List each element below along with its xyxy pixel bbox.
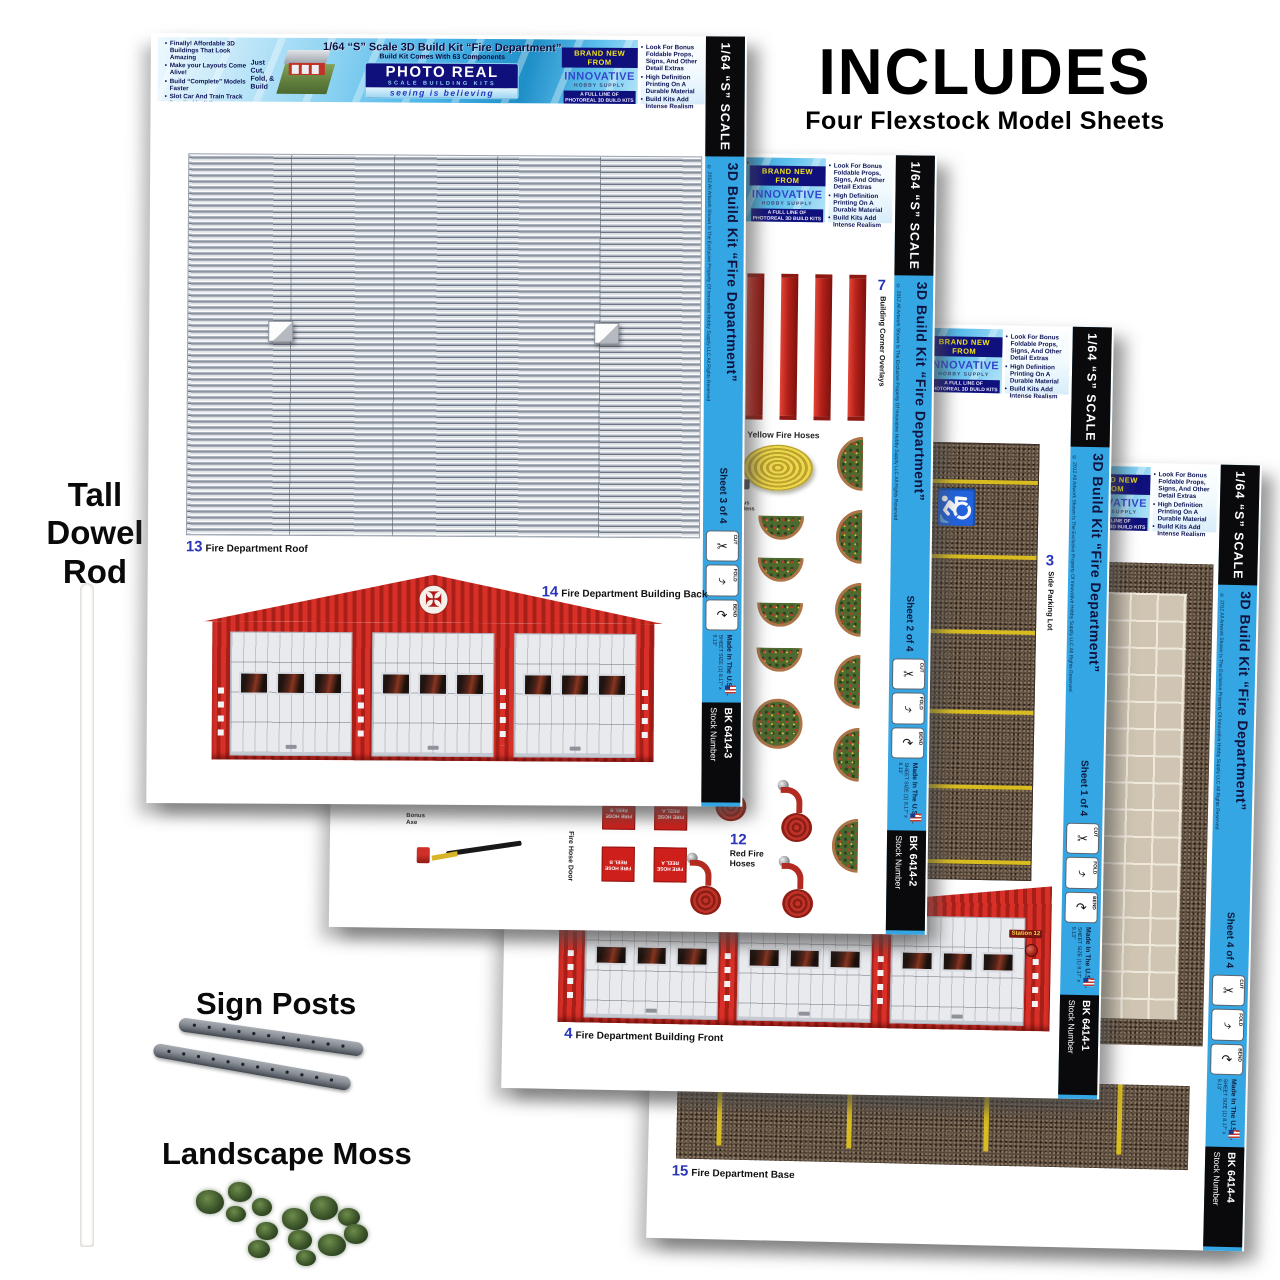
cut-fold-bend-icons: ✂CUT ⤷FOLD ↷BEND [1064, 823, 1099, 924]
fire-hose-door-label: Fire Hose Door [566, 831, 574, 939]
header-left-bullets: Finally! Affordable 3D Buildings That Lo… [158, 37, 251, 102]
garden-half [835, 583, 862, 637]
brand-block: BRAND NEW FROM INNOVATIVE HOBBY SUPPLY A… [749, 157, 826, 222]
bullet: Look For Bonus Foldable Props, Signs, An… [828, 162, 892, 191]
cut-icon: ✂ [903, 668, 914, 681]
part-number: 13 [186, 538, 203, 555]
part-name: Fire Department Base [691, 1168, 795, 1181]
corner-overlay [847, 275, 866, 421]
sheet-number: Sheet 1 of 4 [1063, 759, 1103, 818]
moss-clump [310, 1196, 338, 1220]
stock-number: BK 6414-2 [906, 835, 919, 930]
cut-fold-bend-icons: ✂CUT ⤷FOLD ↷BEND [705, 530, 739, 630]
part-number: 4 [564, 1025, 573, 1042]
door-window [748, 947, 781, 968]
header-right-bullets: Look For Bonus Foldable Props, Signs, An… [828, 158, 893, 223]
sidebar-kit-title: 3D Build Kit “Fire Department” [723, 163, 741, 493]
red-hoses-label: 12 Red Fire Hoses [730, 831, 776, 869]
sign-posts-label: Sign Posts [196, 986, 356, 1022]
parking-line [912, 859, 1031, 865]
roof-vent [594, 323, 619, 344]
moss-clump [282, 1208, 308, 1230]
door-window [828, 949, 861, 970]
landscape-moss-label: Landscape Moss [162, 1136, 412, 1172]
door-window [455, 673, 485, 696]
full-line-label: A FULL LINE OF PHOTOREAL 3D BUILD KITS &… [563, 91, 636, 104]
door-handle [428, 746, 439, 750]
bullet: Make your Layouts Come Alive! [165, 63, 249, 77]
bullet: Build Kits Add Intense Realism [641, 96, 705, 110]
photo-real-logo: PHOTO REAL SCALE BUILDING KITS seeing is… [365, 62, 519, 99]
stock-number: BK 6414-4 [1223, 1152, 1237, 1247]
garden-half [758, 516, 804, 541]
pier-lights [358, 688, 364, 744]
sheet3-header-banner: Finally! Affordable 3D Buildings That Lo… [158, 37, 638, 104]
includes-block: INCLUDES Four Flexstock Model Sheets [785, 42, 1185, 136]
bullet: Build Kits Add Intense Realism [828, 215, 892, 230]
part-number: 7 [877, 277, 886, 294]
cut-fold-build-note: Just Cut, Fold, & Build [250, 38, 277, 102]
garage-door [514, 633, 637, 758]
yellow-fire-hose [743, 444, 814, 491]
door-window [901, 950, 934, 971]
door-window [276, 672, 306, 695]
scale-strip: 1/64 “S” SCALE [1071, 327, 1112, 448]
us-flag-icon [910, 814, 921, 822]
fire-dept-emblem: ✠ [418, 585, 448, 615]
hobby-supply-label: HOBBY SUPPLY [561, 83, 637, 89]
fire-axe [414, 839, 524, 868]
moss-clump [288, 1230, 312, 1250]
sheet-number: Sheet 2 of 4 [889, 594, 929, 653]
cut-icon: ✂ [1077, 832, 1088, 845]
dowel-rod-label: Tall Dowel Rod [30, 476, 160, 591]
logo-tagline: seeing is believing [366, 87, 518, 98]
back-wall [212, 621, 655, 762]
sidebar-kit-title: 3D Build Kit “Fire Department” [1231, 591, 1254, 921]
logo-name: PHOTO REAL [366, 64, 518, 81]
corner-overlay [779, 274, 798, 420]
garden-half [832, 819, 859, 873]
garden-half [757, 603, 803, 628]
part-number: 3 [1046, 552, 1055, 569]
garden-half [834, 655, 861, 709]
parking-line [919, 479, 1038, 485]
fire-hose-reel-door: FIRE HOSE REEL B [601, 847, 634, 882]
red-fire-hose [687, 853, 724, 915]
bend-icon: ↷ [716, 608, 727, 621]
cut-icon: ✂ [1223, 984, 1234, 997]
part-name: Red Fire Hoses [730, 849, 776, 869]
sidebar-kit-title: 3D Build Kit “Fire Department” [910, 282, 930, 612]
stock-number: BK 6414-1 [1078, 1000, 1092, 1095]
parking-line [913, 784, 1032, 790]
bullet: Slot Car And Train Track Detailed buildi… [165, 94, 249, 104]
bullet: Build “Complete” Models Faster [165, 79, 249, 93]
kit-subtitle: Build Kit Comes With 63 Components [323, 53, 561, 61]
bullet: High Definition Printing On A Durable Ma… [1153, 501, 1217, 524]
dowel-rod [80, 583, 94, 1247]
door-handle [951, 1014, 962, 1018]
stock-number-block: Stock Number BK 6414-4 [1203, 1146, 1244, 1247]
pier-lights [218, 687, 224, 743]
stock-number: BK 6414-3 [721, 707, 734, 802]
cut-label: CUT [1238, 979, 1243, 989]
fold-icon: ⤷ [718, 574, 725, 587]
header-right-bullets: Look For Bonus Foldable Props, Signs, An… [1005, 329, 1070, 394]
moss-clump [196, 1190, 224, 1214]
parking-line [1116, 1084, 1123, 1154]
sheet-size-block: SHEET SIZE (1) 8.17” x 9.13” Made In The… [1206, 1078, 1246, 1141]
parking-line [914, 709, 1033, 715]
brand-block: BRAND NEW FROM INNOVATIVE HOBBY SUPPLY A… [925, 328, 1003, 393]
bullet: Look For Bonus Foldable Props, Signs, An… [1153, 471, 1218, 501]
garden-half [833, 728, 860, 782]
door-window [595, 945, 628, 966]
bend-icon: ↷ [1076, 901, 1087, 914]
part-number: 12 [730, 831, 747, 848]
door-window [523, 673, 553, 696]
axe-head [417, 847, 430, 863]
bullet: High Definition Printing On A Durable Ma… [1005, 363, 1069, 385]
header-right-bullets: Look For Bonus Foldable Props, Signs, An… [1152, 467, 1217, 532]
moss-clump [226, 1206, 246, 1222]
parking-lot-label: 3 Side Parking Lot [1041, 552, 1060, 631]
red-fire-hose [778, 780, 815, 842]
cut-box: ✂CUT [1212, 975, 1246, 1007]
handicap-icon: ♿ [937, 486, 978, 529]
bullet: Look For Bonus Foldable Props, Signs, An… [641, 44, 705, 73]
yellow-hoses-label: Yellow Fire Hoses [747, 430, 819, 441]
station-sign: Station 12 [1009, 930, 1042, 939]
part-name: Fire Department Roof [206, 543, 308, 555]
bend-icon: ↷ [1221, 1053, 1232, 1066]
part-number: 15 [672, 1162, 689, 1179]
garage-door [372, 632, 495, 757]
copyright-text: © 2012 All Artwork Shown Is The Exclusiv… [704, 164, 711, 494]
garage-door [230, 631, 353, 756]
door-handle [286, 745, 297, 749]
door-window [560, 674, 590, 697]
fire-department-roof [186, 153, 702, 538]
sheet2-sidebar: 1/64 “S” SCALE © 2012 All Artwork Shown … [886, 155, 935, 934]
stock-label: Stock Number [1210, 1152, 1222, 1247]
pier-lights [642, 690, 648, 746]
building-back: ✠ [203, 573, 664, 762]
bullet: Finally! Affordable 3D Buildings That Lo… [165, 41, 249, 62]
includes-title: INCLUDES [785, 40, 1185, 105]
door-window [675, 946, 708, 967]
us-flag-icon [1229, 1130, 1240, 1138]
moss-clump [248, 1240, 270, 1258]
garden-half [757, 558, 803, 583]
roof-label: 13Fire Department Roof [186, 538, 308, 556]
bend-icon: ↷ [902, 736, 913, 749]
fire-hose-reel-door: FIRE HOSE REEL A [653, 847, 686, 882]
garden-half [756, 648, 802, 673]
door-window [418, 673, 448, 696]
model-sheet-3: Finally! Affordable 3D Buildings That Lo… [146, 33, 747, 807]
brand-new-label: BRAND NEW FROM [561, 48, 638, 68]
sheet-size: SHEET SIZE (1) 8.17” x 9.13” [1215, 1079, 1228, 1141]
copyright-text: © 2012 All Artwork Shown Is The Exclusiv… [1065, 455, 1076, 785]
door-window [635, 945, 668, 966]
fold-box: ⤷FOLD [1211, 1009, 1245, 1041]
bonus-axe-label: Bonus Axe [406, 813, 432, 827]
part-name: Fire Department Building Front [575, 1030, 723, 1044]
pier-lights [877, 956, 884, 1006]
garden-circle [752, 698, 803, 749]
bend-label: BEND [1236, 1048, 1241, 1062]
copyright-text: © 2012 All Artwork Shown Is The Exclusiv… [1211, 593, 1223, 923]
moss-clump [344, 1224, 368, 1244]
door-window [239, 672, 269, 695]
product-image: INCLUDES Four Flexstock Model Sheets Fin… [0, 0, 1280, 1280]
us-flag-icon [725, 686, 736, 694]
red-fire-hose [779, 856, 816, 918]
roof-vent [268, 321, 293, 342]
fold-icon: ⤷ [1224, 1018, 1232, 1031]
logo-sub: SCALE BUILDING KITS [366, 80, 518, 87]
sheet-number: Sheet 3 of 4 [703, 466, 742, 524]
fold-icon: ⤷ [904, 702, 911, 715]
bullet: Build Kits Add Intense Realism [1004, 386, 1068, 401]
moss-clump [256, 1222, 278, 1240]
bullet: High Definition Printing On A Durable Ma… [641, 74, 705, 96]
cut-fold-bend-icons: ✂CUT ⤷FOLD ↷BEND [891, 658, 925, 758]
parking-line [917, 554, 1036, 560]
moss-clump [228, 1182, 252, 1202]
copyright-text: © 2012 All Artwork Shown Is The Exclusiv… [891, 283, 900, 613]
maltese-cross-icon: ✠ [425, 589, 443, 610]
building-front-label: 4Fire Department Building Front [564, 1025, 723, 1045]
door-window [788, 948, 821, 969]
moss-clump [296, 1250, 316, 1266]
scale-strip: 1/64 “S” SCALE [1218, 465, 1260, 586]
sidebar-kit-title: 3D Build Kit “Fire Department” [1084, 453, 1106, 783]
header-right-bullets: Look For Bonus Foldable Props, Signs, An… [641, 40, 705, 104]
corner-overlay [745, 273, 764, 419]
pier-lights [1032, 959, 1039, 1009]
fire-bell [1025, 944, 1038, 957]
part-name: Building Corner Overlays [877, 296, 887, 387]
us-flag-icon [1083, 978, 1094, 986]
corner-overlays-label: 7 Building Corner Overlays [873, 277, 892, 387]
parking-line [916, 629, 1035, 635]
bend-box: ↷BEND [1210, 1043, 1244, 1075]
cut-icon: ✂ [717, 540, 728, 553]
garden-half [836, 510, 863, 564]
header-title-block: 1/64 “S” Scale 3D Build Kit “Fire Depart… [323, 38, 562, 103]
door-window [381, 672, 411, 695]
door-handle [570, 746, 581, 750]
part-name: Side Parking Lot [1046, 571, 1056, 630]
garden-half [837, 437, 864, 491]
base-label: 15Fire Department Base [672, 1162, 795, 1182]
door-window [941, 951, 974, 972]
pier-lights [724, 953, 731, 1003]
fold-icon: ⤷ [1078, 866, 1086, 879]
bullet: Look For Bonus Foldable Props, Signs, An… [1005, 333, 1070, 362]
moss-clump [252, 1198, 272, 1216]
includes-subtitle: Four Flexstock Model Sheets [785, 107, 1185, 136]
corner-overlay [813, 274, 832, 420]
moss-clump [318, 1234, 346, 1256]
scale-strip: 1/64 “S” SCALE [894, 155, 935, 276]
door-window [597, 674, 627, 697]
scale-strip: 1/64 “S” SCALE [705, 36, 745, 156]
bullet: High Definition Printing On A Durable Ma… [828, 192, 892, 214]
bullet: Build Kits Add Intense Realism [1152, 523, 1216, 539]
innovative-label: INNOVATIVE [561, 71, 638, 83]
kit-title: 1/64 “S” Scale 3D Build Kit “Fire Depart… [323, 41, 561, 54]
door-window [313, 672, 343, 695]
sheet-number: Sheet 4 of 4 [1209, 911, 1249, 970]
pier-lights [567, 950, 574, 1000]
cut-fold-bend-icons: ✂CUT ⤷FOLD ↷BEND [1210, 975, 1245, 1076]
door-handle [798, 1011, 809, 1015]
pier-lights [500, 689, 506, 745]
brand-block: BRAND NEW FROM INNOVATIVE HOBBY SUPPLY A… [561, 40, 638, 104]
door-window [981, 952, 1014, 973]
door-handle [645, 1008, 656, 1012]
axe-shaft [432, 851, 458, 861]
kit-thumbnail-image [277, 38, 323, 102]
sheet3-sidebar: 1/64 “S” SCALE © 2012 All Artwork Shown … [701, 36, 745, 806]
fold-label: FOLD [1237, 1013, 1242, 1026]
